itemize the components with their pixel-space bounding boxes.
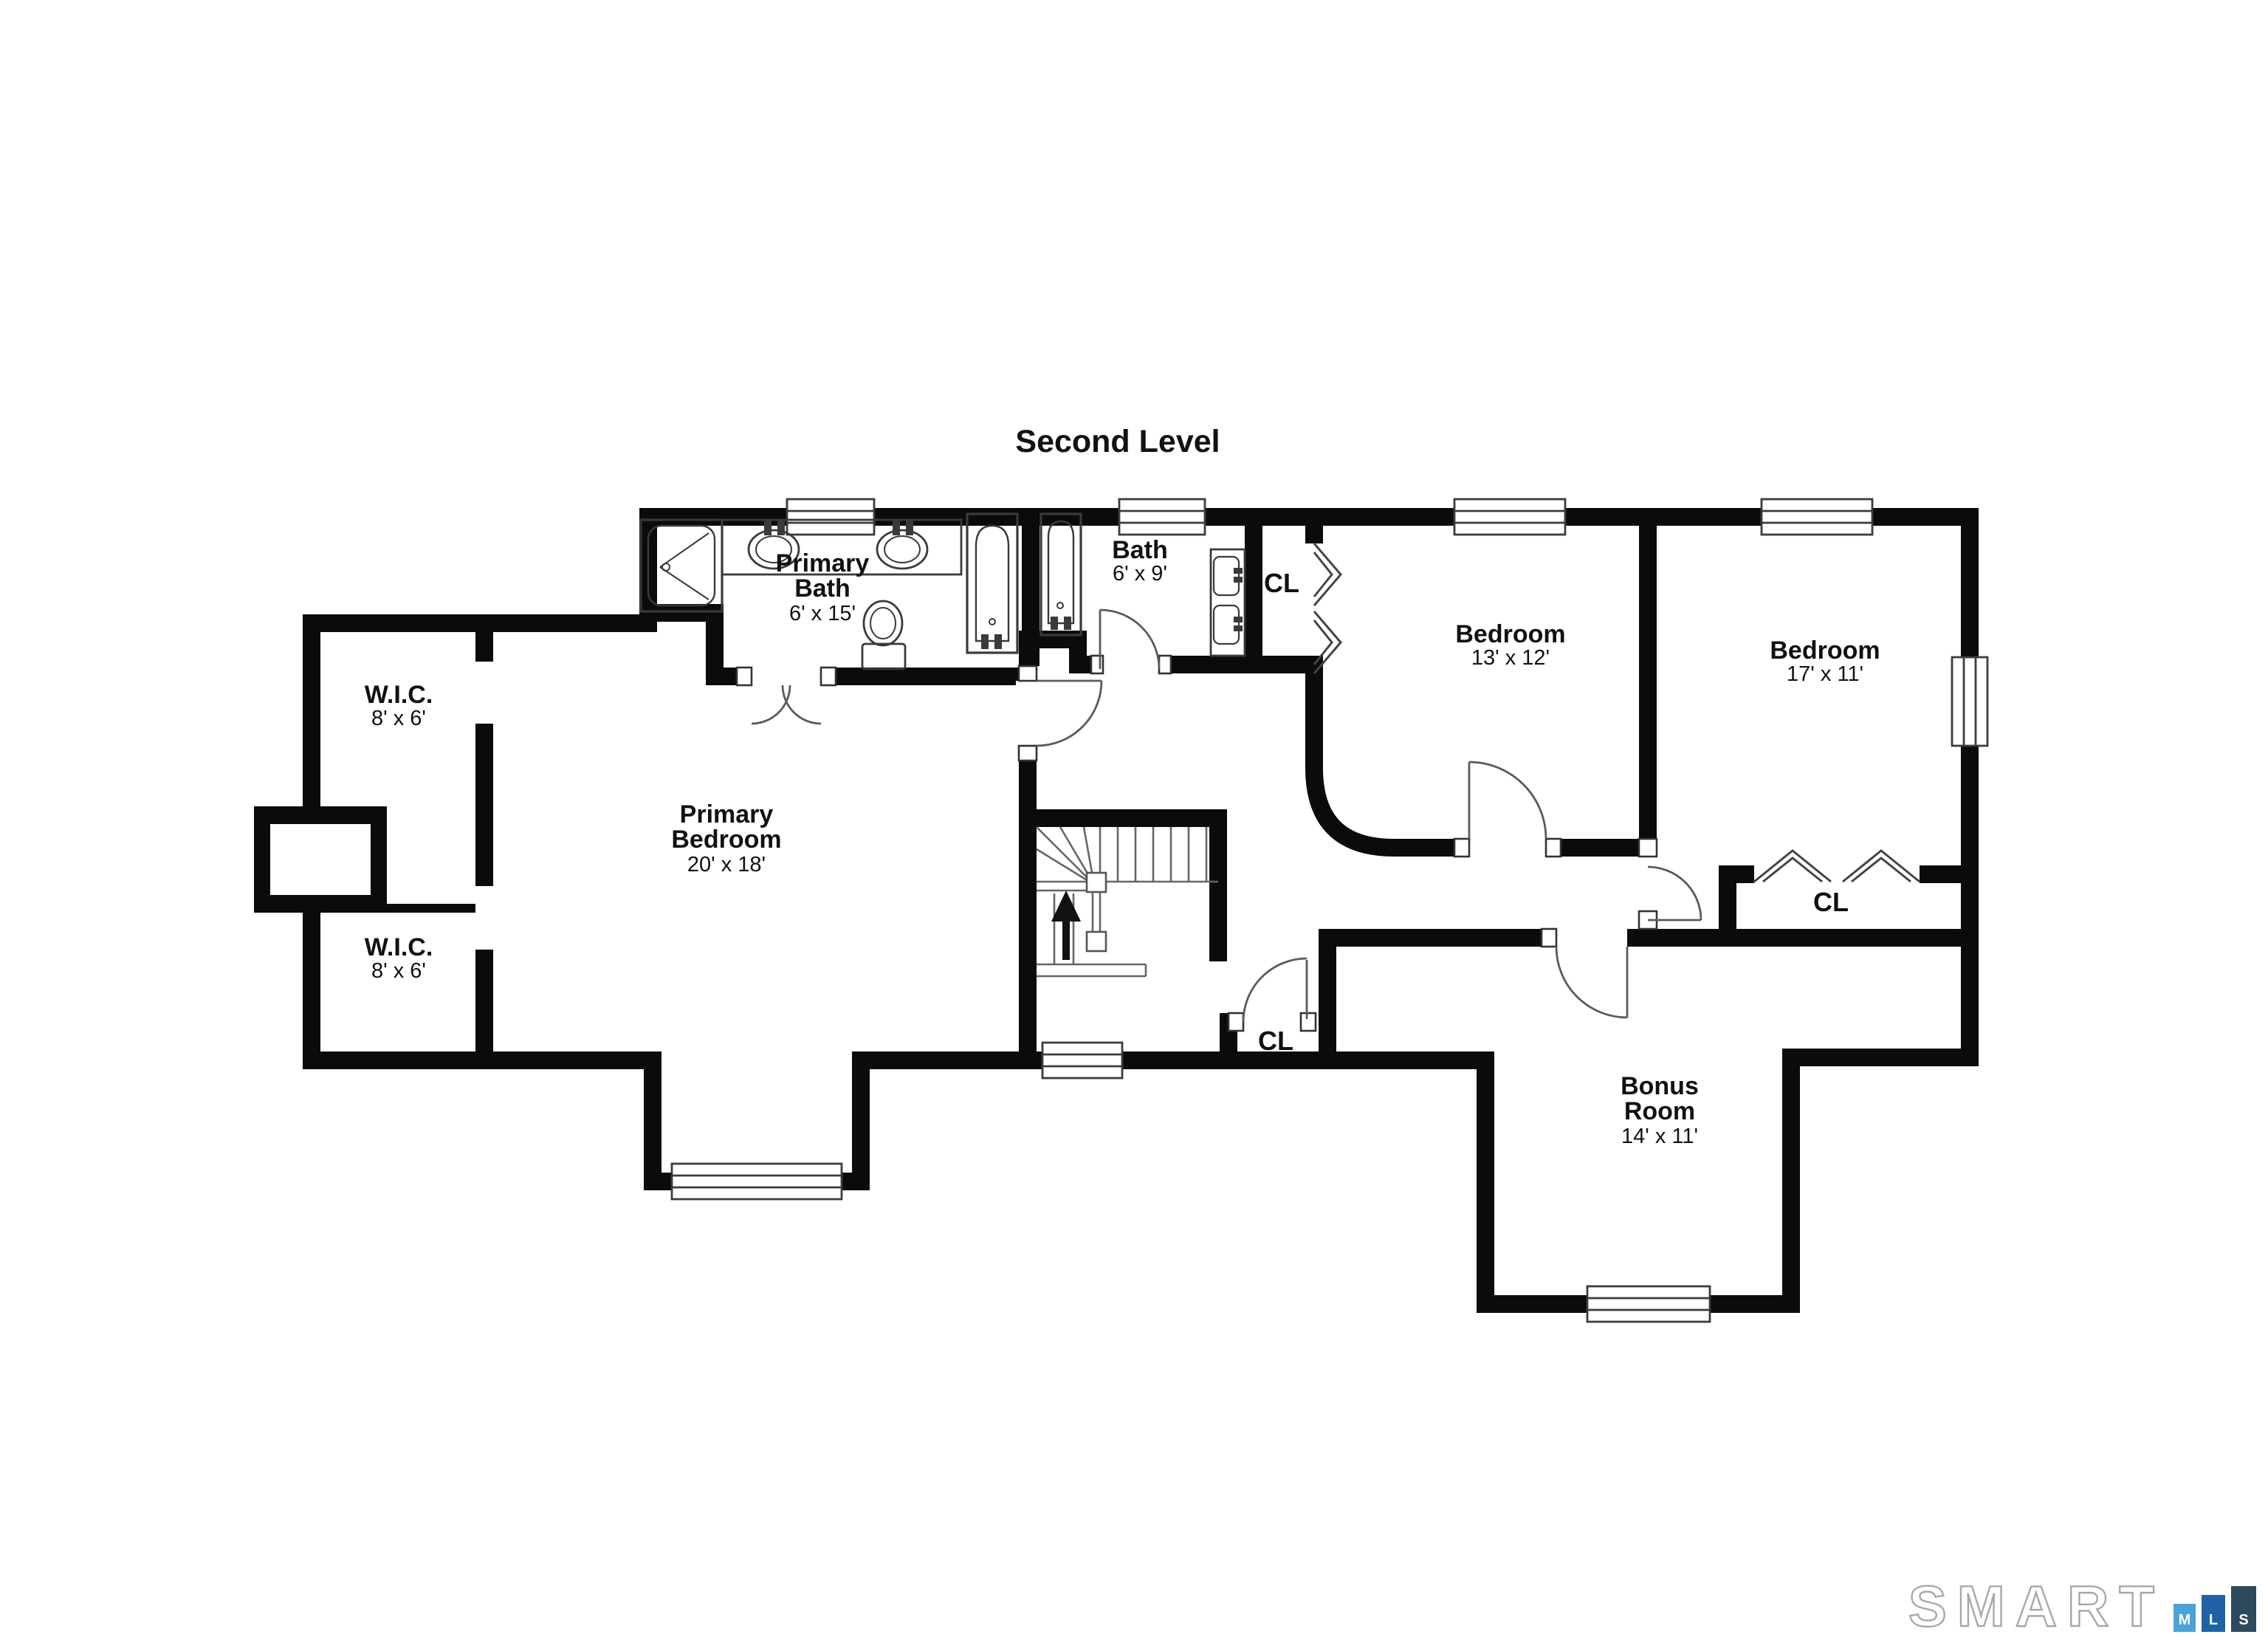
room-label-wic-lower: W.I.C. 8' x 6' bbox=[332, 935, 465, 984]
room-label-wic-upper: W.I.C. 8' x 6' bbox=[332, 682, 465, 731]
room-name: W.I.C. bbox=[332, 682, 465, 708]
page-title: Second Level bbox=[1015, 427, 1220, 459]
room-name: W.I.C. bbox=[332, 935, 465, 961]
mls-block-s: S bbox=[2231, 1585, 2256, 1631]
window-icon bbox=[787, 499, 874, 535]
room-label-bath: Bath 6' x 9' bbox=[1096, 538, 1184, 586]
room-label-primary-bedroom: Primary Bedroom 20' x 18' bbox=[645, 802, 808, 876]
smart-logo-text: SMART bbox=[1908, 1585, 2165, 1631]
room-label-bedroom-13: Bedroom 13' x 12' bbox=[1429, 622, 1592, 670]
room-label-primary-bath: Primary Bath 6' x 15' bbox=[760, 551, 884, 625]
room-name: Primary Bath bbox=[760, 551, 884, 602]
room-dims: 8' x 6' bbox=[332, 962, 465, 984]
room-label-bonus-room: Bonus Room 14' x 11' bbox=[1601, 1074, 1719, 1148]
room-name: Primary Bedroom bbox=[645, 802, 808, 853]
room-dims: 13' x 12' bbox=[1429, 649, 1592, 671]
primary-bedroom-door-opening bbox=[1016, 681, 1039, 746]
floor-plan-page: Second Level Primary Bath 6' x 15' Bath … bbox=[0, 0, 2268, 1640]
window-icon bbox=[1042, 1043, 1122, 1078]
room-dims: 6' x 9' bbox=[1096, 565, 1184, 587]
closet-label-hall: CL bbox=[1258, 1028, 1293, 1055]
room-name: Bedroom bbox=[1744, 638, 1906, 664]
window-icon bbox=[1762, 499, 1872, 535]
smart-mls-logo: SMART M L S bbox=[1908, 1585, 2256, 1631]
floor-plan-drawing bbox=[0, 0, 2268, 1639]
room-name: Bath bbox=[1096, 538, 1184, 563]
room-dims: 6' x 15' bbox=[760, 603, 884, 625]
closet-label-bath: CL bbox=[1264, 570, 1299, 597]
mls-block-l: L bbox=[2202, 1594, 2225, 1631]
room-name: Bedroom bbox=[1429, 622, 1592, 648]
room-dims: 14' x 11' bbox=[1601, 1126, 1719, 1148]
window-icon bbox=[1952, 657, 1987, 746]
window-icon bbox=[672, 1164, 842, 1199]
room-dims: 8' x 6' bbox=[332, 710, 465, 732]
window-icon bbox=[1587, 1286, 1710, 1322]
mls-block-m: M bbox=[2173, 1603, 2196, 1631]
closet-label-bedroom: CL bbox=[1813, 889, 1849, 916]
room-label-bedroom-17: Bedroom 17' x 11' bbox=[1744, 638, 1906, 687]
window-icon bbox=[1454, 499, 1565, 535]
room-dims: 17' x 11' bbox=[1744, 665, 1906, 687]
window-icon bbox=[1119, 499, 1205, 535]
room-name: Bonus Room bbox=[1601, 1074, 1719, 1125]
room-dims: 20' x 18' bbox=[645, 854, 808, 876]
